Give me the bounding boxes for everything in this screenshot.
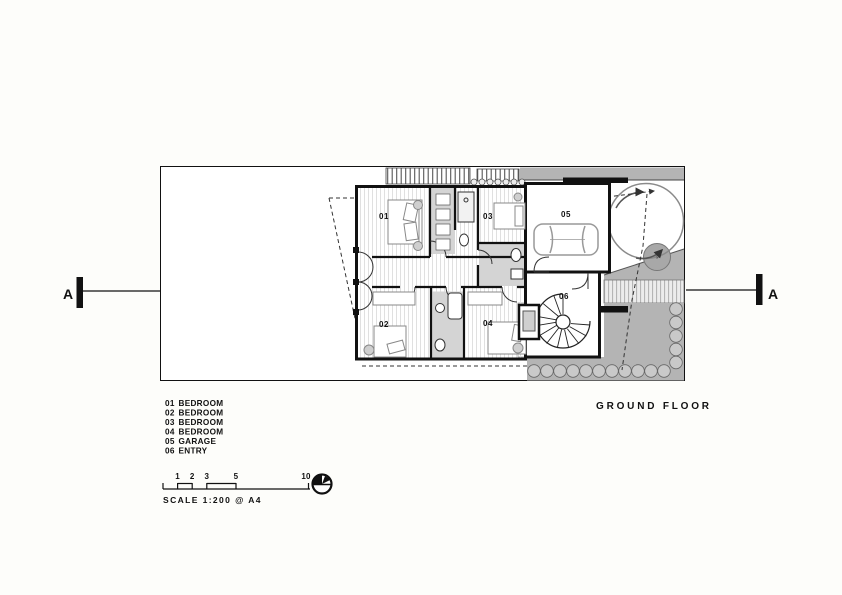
- porch-wall-segment: [601, 306, 628, 313]
- legend-num: 04: [165, 428, 175, 437]
- legend-label: BEDROOM: [179, 399, 224, 408]
- legend-label: BEDROOM: [179, 409, 224, 418]
- legend-num: 03: [165, 418, 175, 427]
- legend-item: 04 BEDROOM: [165, 428, 223, 437]
- plan-title: GROUND FLOOR: [596, 401, 712, 412]
- section-marker-left: A: [63, 277, 160, 308]
- legend-item: 01 BEDROOM: [165, 399, 223, 408]
- legend-num: 06: [165, 447, 175, 456]
- legend-label: BEDROOM: [179, 418, 224, 427]
- room-label-05: 05: [561, 210, 571, 219]
- entry-alcove: [519, 305, 539, 339]
- house: [353, 184, 628, 360]
- scale-tick: 3: [204, 472, 209, 481]
- legend: 01 BEDROOM 02 BEDROOM 03 BEDROOM 04 BEDR…: [165, 399, 223, 456]
- scale-tick: 5: [234, 472, 239, 481]
- scale-tick: 10: [301, 472, 311, 481]
- legend-label: ENTRY: [179, 447, 208, 456]
- legend-num: 02: [165, 409, 175, 418]
- scale-tick: 1: [175, 472, 180, 481]
- room-label-01: 01: [379, 212, 389, 221]
- entry-walkway: [604, 280, 684, 303]
- legend-item: 03 BEDROOM: [165, 418, 223, 427]
- section-letter-right: A: [768, 286, 778, 302]
- legend-label: BEDROOM: [179, 428, 224, 437]
- drawing-sheet: 01 02 03 04 05 06 A A GROUND FLOOR 01 BE…: [0, 0, 842, 595]
- north-arrow-icon: [313, 475, 332, 494]
- floor-plan-svg: 01 02 03 04 05 06 A A GROUND FLOOR 01 BE…: [0, 0, 842, 595]
- scale-bar: 1 2 3 5 10 SCALE 1:200 @ A4: [163, 472, 332, 505]
- room-label-02: 02: [379, 320, 389, 329]
- section-letter-left: A: [63, 286, 73, 302]
- room-label-06: 06: [559, 292, 569, 301]
- legend-item: 06 ENTRY: [165, 447, 208, 456]
- scale-tick: 2: [190, 472, 195, 481]
- legend-num: 01: [165, 399, 175, 408]
- scale-label: SCALE 1:200 @ A4: [163, 495, 262, 505]
- bed-01: [388, 200, 423, 251]
- legend-num: 05: [165, 437, 175, 446]
- section-bar-right: [756, 274, 763, 305]
- legend-label: GARAGE: [179, 437, 217, 446]
- hedge-row: [528, 365, 671, 378]
- hedge-column: [670, 303, 683, 369]
- room-label-03: 03: [483, 212, 493, 221]
- legend-item: 02 BEDROOM: [165, 409, 223, 418]
- section-marker-right: A: [686, 274, 778, 305]
- section-bar-left: [77, 277, 84, 308]
- legend-item: 05 GARAGE: [165, 437, 216, 446]
- room-label-04: 04: [483, 319, 493, 328]
